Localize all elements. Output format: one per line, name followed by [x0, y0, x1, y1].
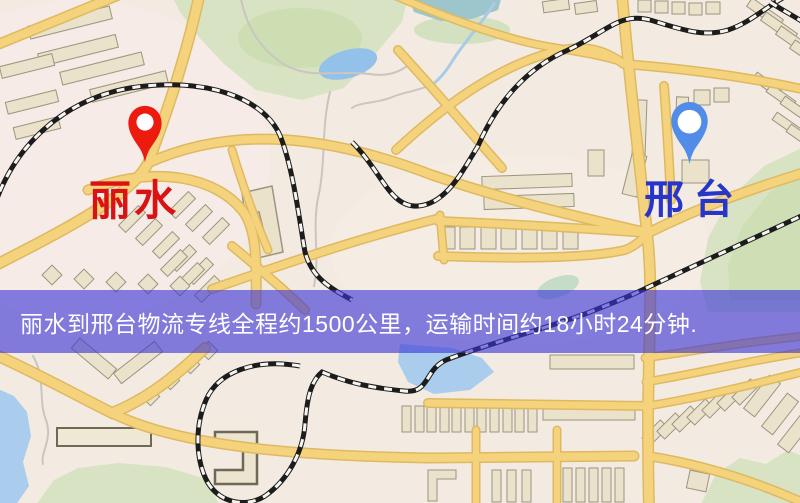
route-info-banner: 丽水到邢台物流专线全程约1500公里，运输时间约18小时24分钟. [0, 290, 800, 353]
destination-city-label: 邢台 [644, 180, 744, 220]
origin-pin[interactable] [127, 104, 163, 169]
destination-pin[interactable] [667, 101, 712, 170]
logistics-route-map[interactable]: 丽水 邢台 丽水到邢台物流专线全程约1500公里，运输时间约18小时24分钟. [0, 0, 800, 503]
route-info-text: 丽水到邢台物流专线全程约1500公里，运输时间约18小时24分钟. [20, 305, 697, 339]
origin-pin-icon [127, 104, 163, 169]
destination-pin-icon [667, 101, 712, 170]
map-canvas [0, 0, 800, 503]
origin-city-label: 丽水 [89, 180, 179, 222]
